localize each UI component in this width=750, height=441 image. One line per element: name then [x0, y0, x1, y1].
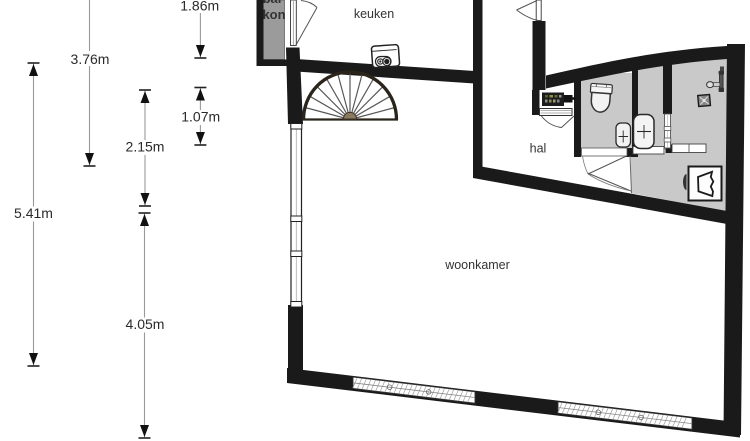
svg-text:bal: bal [263, 0, 282, 6]
svg-text:hal: hal [530, 142, 547, 156]
svg-text:woonkamer: woonkamer [444, 258, 510, 272]
svg-text:1.86m: 1.86m [180, 0, 219, 14]
svg-text:keuken: keuken [354, 7, 394, 21]
svg-text:2.15m: 2.15m [126, 139, 165, 155]
svg-text:4.05m: 4.05m [126, 316, 165, 332]
svg-text:kon: kon [262, 7, 285, 22]
svg-text:5.41m: 5.41m [14, 205, 53, 221]
svg-text:1.07m: 1.07m [181, 109, 220, 125]
svg-text:3.76m: 3.76m [71, 51, 110, 67]
